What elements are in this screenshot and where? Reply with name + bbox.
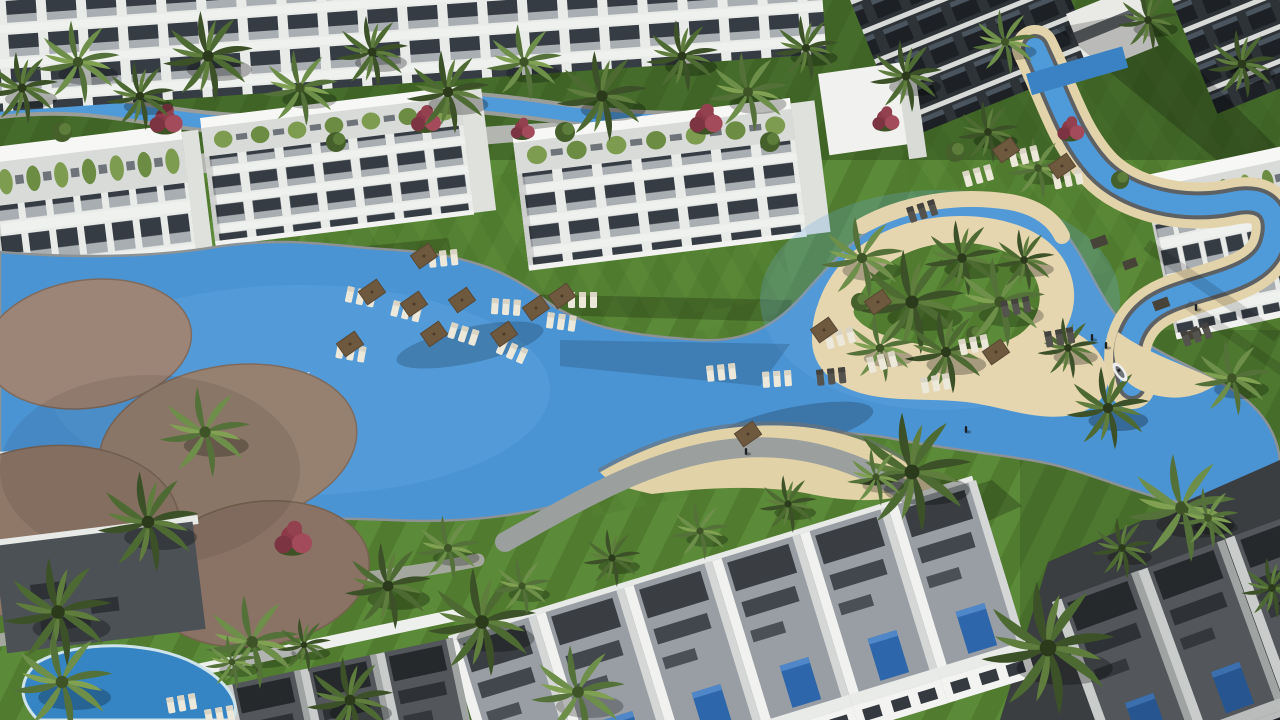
shrub <box>760 132 780 152</box>
shrub <box>326 132 346 152</box>
resort-aerial-render <box>0 0 1280 720</box>
resort-scene-canvas <box>0 0 1280 720</box>
shrub <box>555 122 575 142</box>
lounger-row <box>762 370 792 388</box>
shrub <box>52 122 72 142</box>
shrub <box>945 142 965 162</box>
lounger-row-dark <box>816 367 847 386</box>
shrub <box>1111 171 1129 189</box>
scene-layers <box>0 0 1280 720</box>
lounger-row <box>491 298 521 316</box>
lounger-row <box>706 363 737 382</box>
